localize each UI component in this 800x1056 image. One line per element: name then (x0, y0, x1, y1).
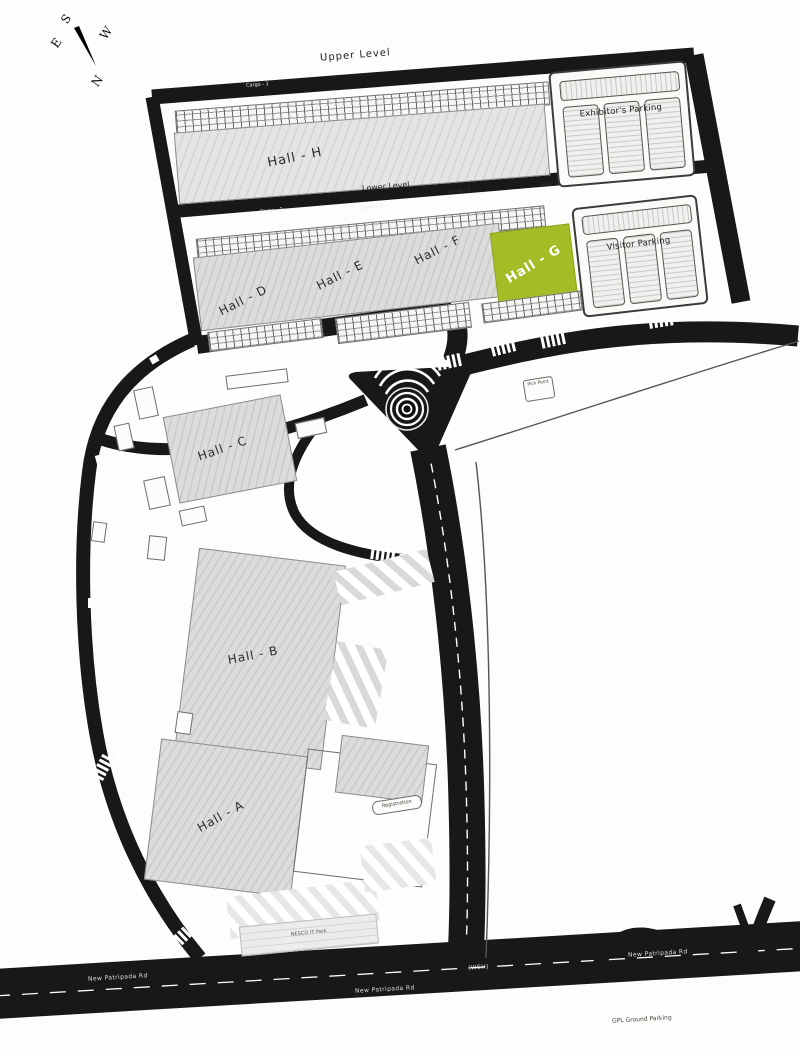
gate-mark (88, 598, 95, 608)
crosswalk-icon (61, 699, 76, 724)
exhibitor-parking: Exhibitor's Parking (548, 60, 696, 188)
hall-e-label: Hall - E (314, 258, 366, 293)
hall-a-label: Hall - A (195, 798, 247, 835)
hall-b-label: Hall - B (227, 643, 280, 667)
building-outline (91, 521, 108, 543)
hall-h-label: Hall - H (266, 145, 324, 171)
hall-b: Hall - B (174, 548, 346, 771)
parking-stripes (359, 838, 436, 892)
crosswalk-icon (431, 916, 444, 940)
venue-map: S W E N Upper Level Hall - H Exhibitor's… (0, 0, 800, 1056)
hall-c-label: Hall - C (196, 433, 249, 463)
hall-d-label: Hall - D (217, 282, 270, 318)
parking-bay (559, 71, 680, 101)
hall-a: Hall - A (144, 739, 308, 898)
pick-point-box: Pick Point (522, 376, 555, 402)
building-annex (335, 735, 429, 803)
highway-marker-label: (WEH) (468, 963, 489, 971)
roundabout-center (403, 405, 412, 414)
gate-mark (115, 751, 124, 762)
visitor-parking: Visitor Parking (571, 194, 709, 318)
hall-f-label: Hall - F (412, 233, 463, 268)
building-outline (147, 535, 167, 561)
hall-g-label: Hall - G (503, 242, 564, 287)
compass-needle-icon (74, 26, 96, 66)
pick-point-label: Pick Point (524, 377, 553, 389)
crosswalk-icon (326, 359, 353, 379)
crosswalk-icon (381, 446, 399, 472)
building-outline (175, 711, 194, 735)
